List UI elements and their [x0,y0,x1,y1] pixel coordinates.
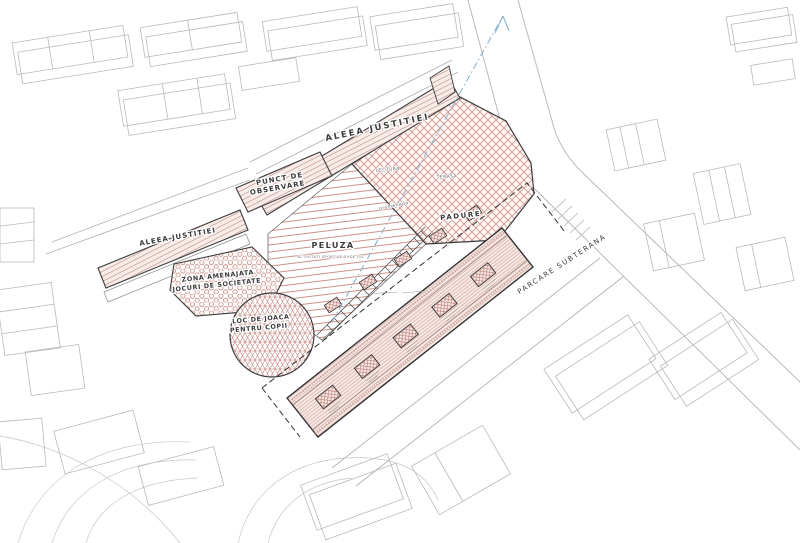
context-curved-paths [0,436,438,543]
site-plan-drawing: ALEEA JUSTITIEI ALEEA JUSTITIEI PUNCT DE… [0,0,800,543]
pedestrian-crossing-ticks [552,199,590,240]
site-plan-canvas: ALEEA JUSTITIEI ALEEA JUSTITIEI PUNCT DE… [0,0,800,543]
label-peluza-sub: ACTIVITATI SPORTIVE SI DE JOC [297,255,365,259]
context-buildings-bottom-right [544,309,759,423]
context-buildings-top-right [726,7,797,85]
context-buildings-right [606,119,794,291]
playground-circle [230,293,314,377]
context-buildings-left-edge [0,208,85,470]
context-buildings-bottom [54,410,511,541]
label-peluza: PELUZA [311,241,354,250]
